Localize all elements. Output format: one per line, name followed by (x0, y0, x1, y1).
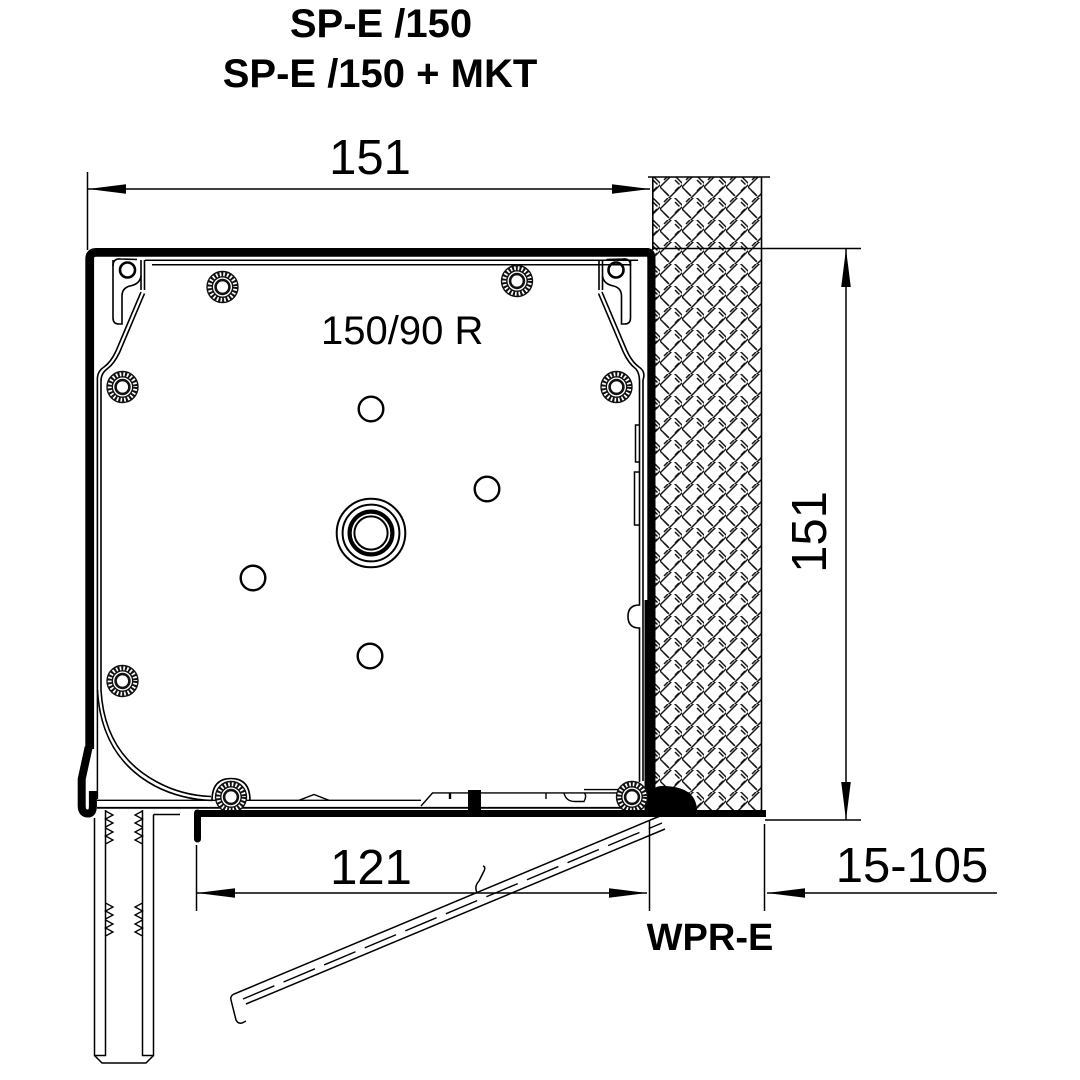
svg-text:151: 151 (783, 491, 837, 573)
svg-text:121: 121 (330, 841, 412, 895)
svg-text:WPR-E: WPR-E (647, 917, 774, 959)
svg-text:15-105: 15-105 (836, 839, 989, 893)
svg-text:SP-E /150: SP-E /150 (290, 2, 472, 46)
svg-text:SP-E /150 + MKT: SP-E /150 + MKT (223, 52, 538, 96)
svg-text:150/90 R: 150/90 R (321, 309, 483, 353)
svg-text:151: 151 (329, 131, 411, 185)
